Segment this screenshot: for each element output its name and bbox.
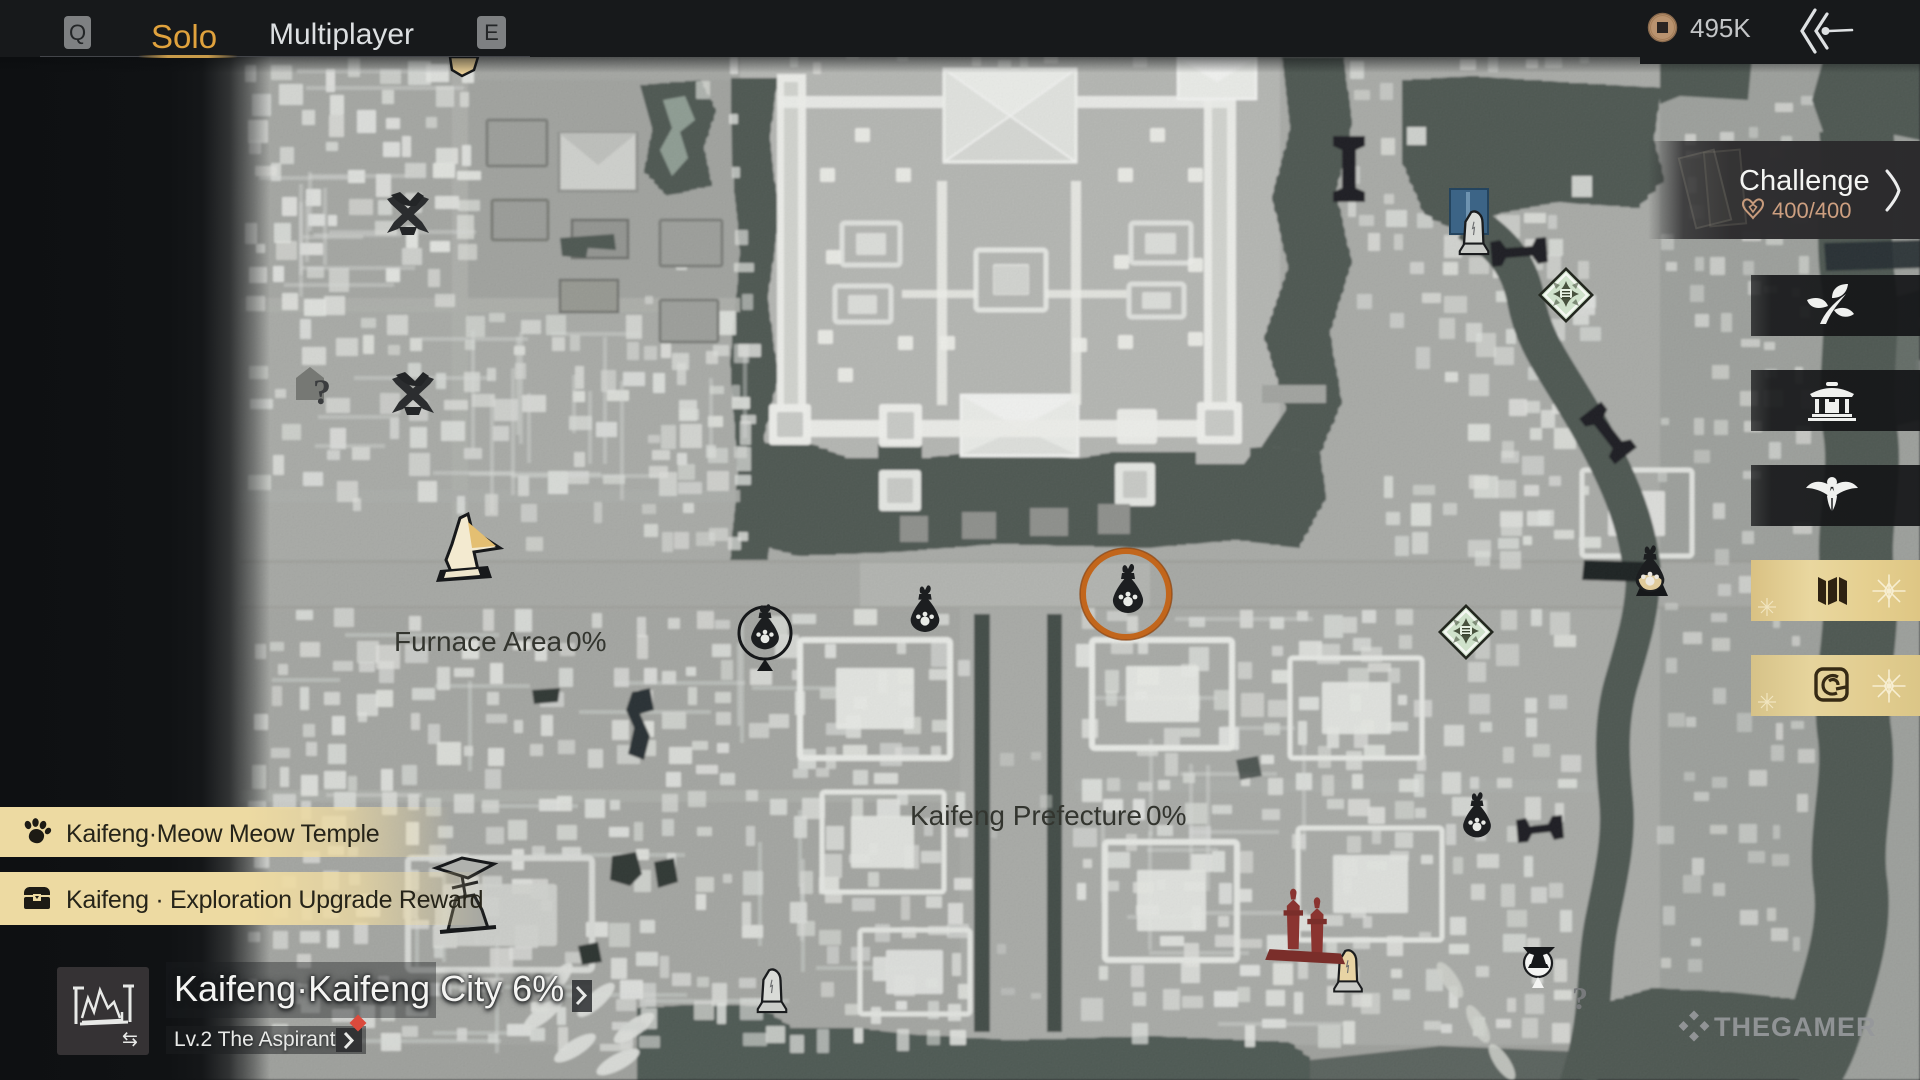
svg-text:?: ?	[1572, 980, 1588, 1016]
svg-text:0%: 0%	[566, 626, 606, 657]
svg-text:?: ?	[313, 372, 331, 412]
svg-text:Kaifeng Prefecture: Kaifeng Prefecture	[910, 800, 1142, 831]
svg-text:Furnace Area: Furnace Area	[394, 626, 563, 657]
svg-text:0%: 0%	[1146, 800, 1186, 831]
